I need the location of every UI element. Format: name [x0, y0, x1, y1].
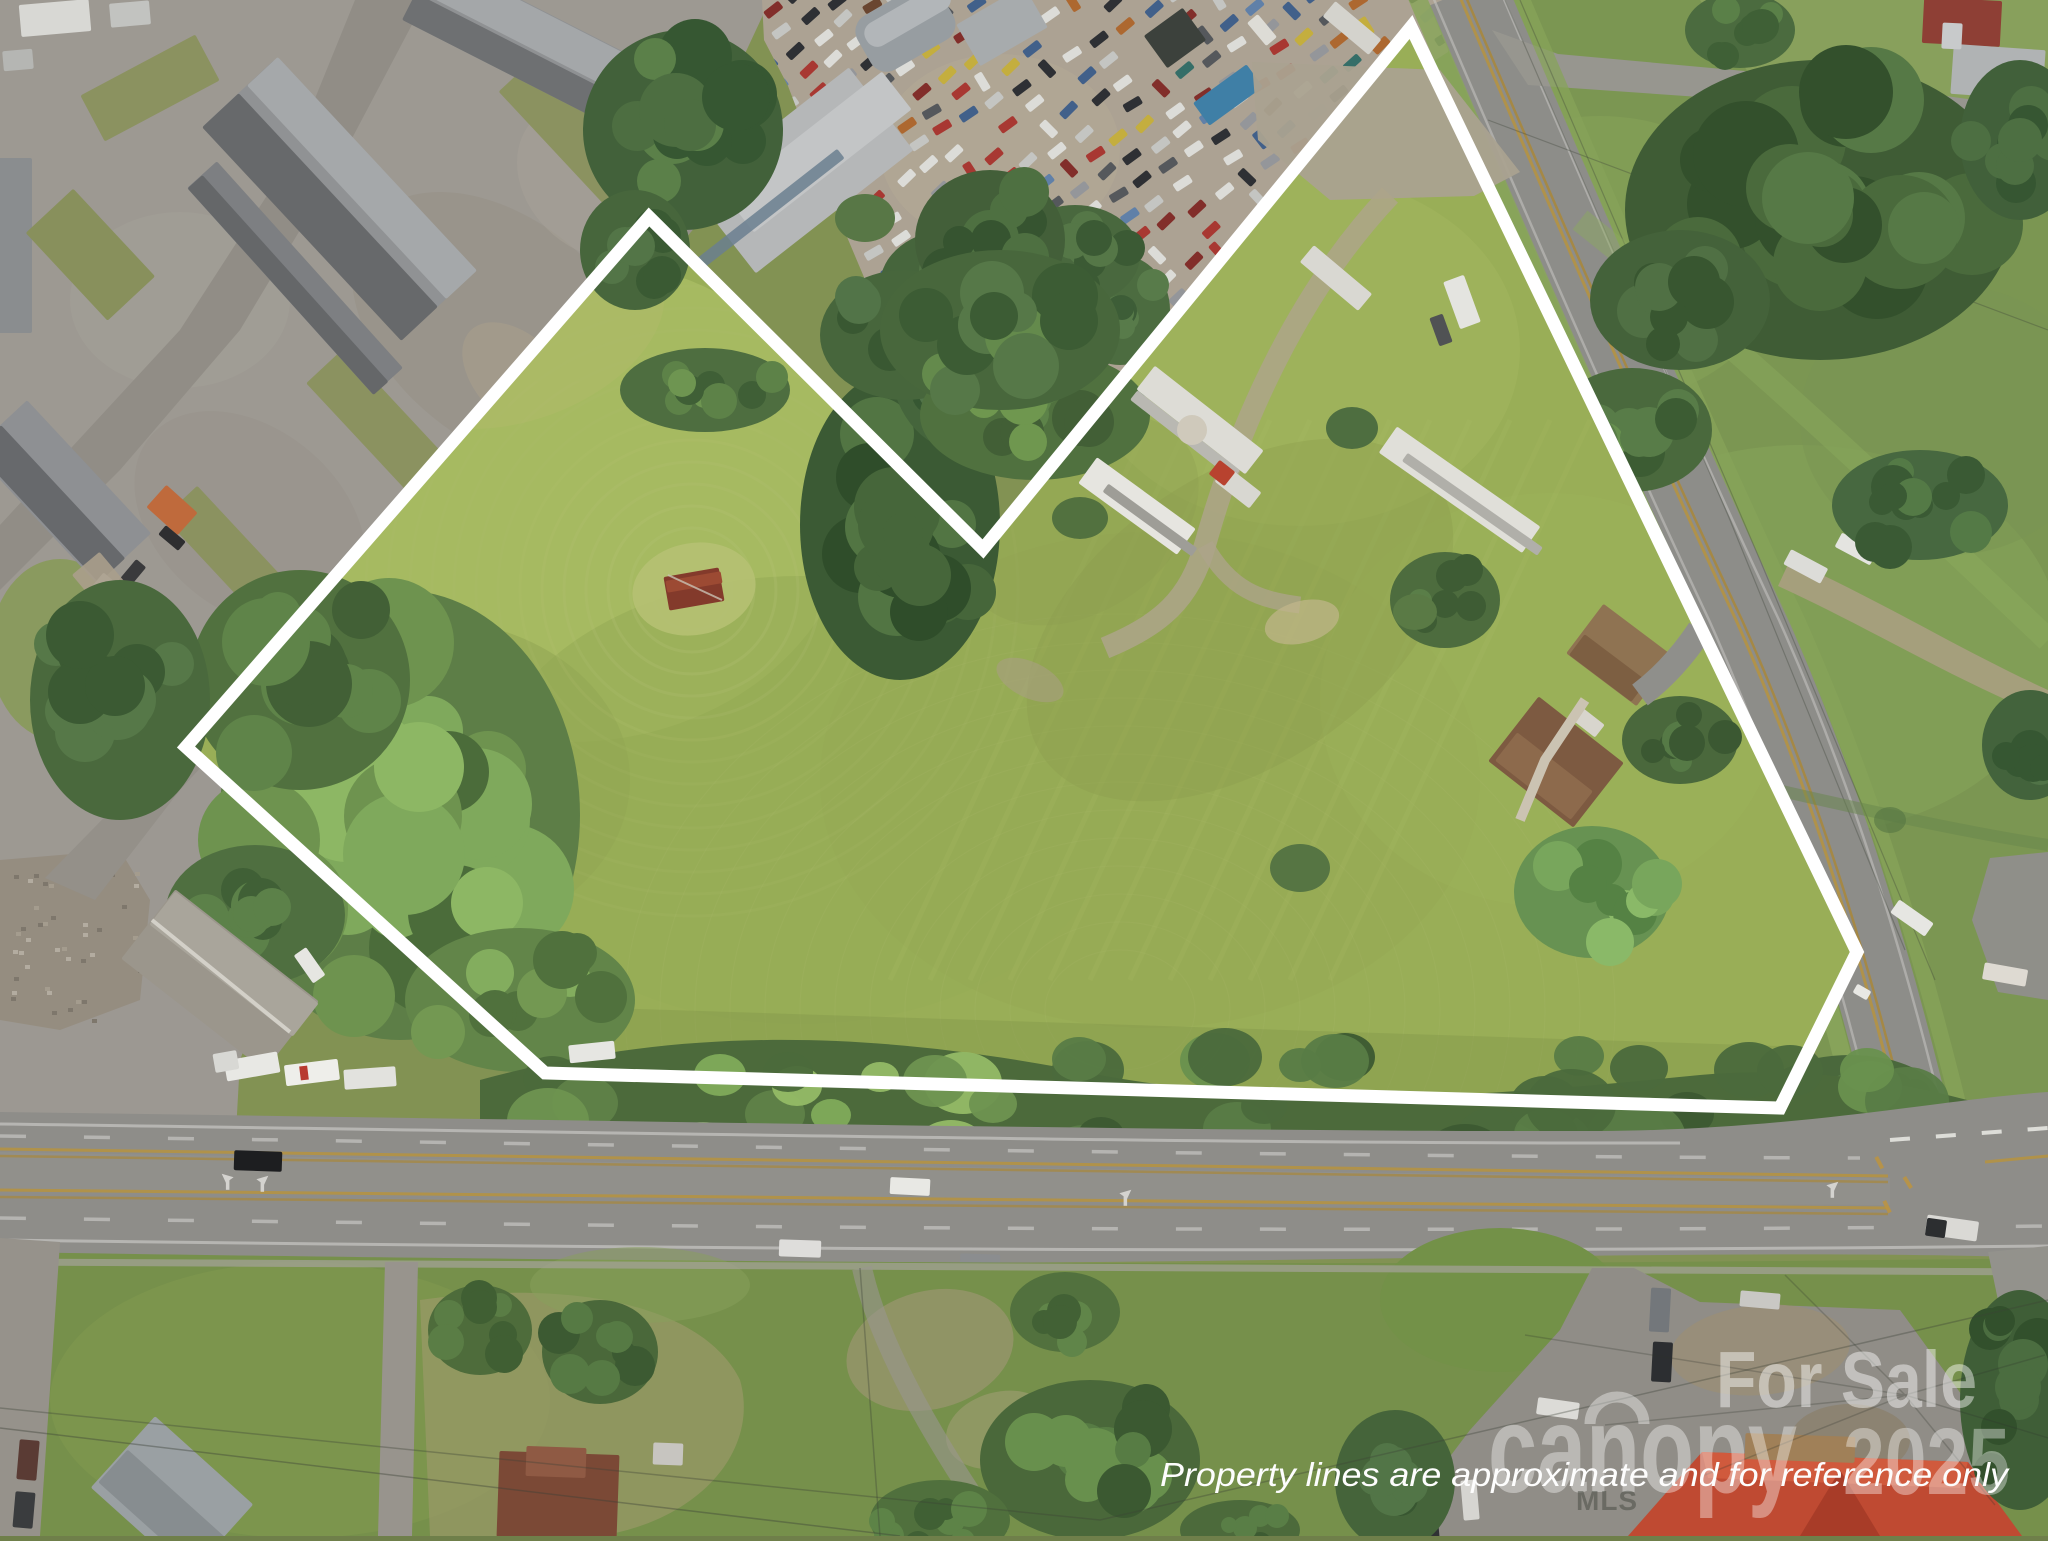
svg-text:canopy: canopy	[1488, 1381, 1797, 1519]
svg-text:Property lines are approximate: Property lines are approximate and for r…	[1160, 1456, 2011, 1493]
